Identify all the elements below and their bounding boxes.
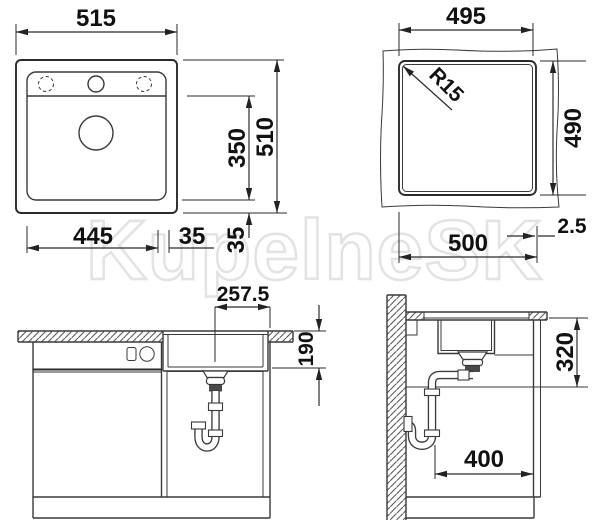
dim-trap-clearance: 400 [435, 445, 533, 479]
dim-label-510: 510 [252, 117, 279, 157]
dim-label-190: 190 [295, 331, 318, 366]
cutout-view: R15 495 490 500 [381, 3, 588, 263]
side-view: 320 400 [387, 295, 588, 520]
dim-corner-radius: R15 [403, 63, 468, 110]
sink-technical-drawing: KupelneSK [0, 0, 600, 520]
dim-label-350: 350 [224, 128, 251, 168]
drain-flange-side [458, 352, 487, 360]
counter-hatch-back [406, 313, 424, 320]
cabinet-side [406, 320, 541, 518]
appliance-knob [140, 347, 154, 361]
dim-label-490: 490 [560, 108, 587, 148]
dimension-drawing-canvas: 515 510 350 445 [0, 0, 600, 520]
drain-circle [79, 116, 113, 150]
dim-label-445: 445 [73, 223, 113, 250]
dim-cutout-height: 490 [540, 61, 587, 195]
dim-label-400: 400 [464, 446, 504, 473]
dim-right-offset: 35 [169, 223, 214, 253]
dim-edge-gap: 2.5 [507, 215, 587, 238]
dim-label-515: 515 [76, 5, 116, 32]
sink-bowl-section [424, 318, 534, 355]
countertop-hatch-right [268, 332, 293, 343]
sink-outer-outline [16, 60, 177, 213]
countertop-hatch-left [18, 332, 163, 343]
wall-hatch [387, 295, 406, 520]
dim-drain-center: 257.5 [215, 283, 270, 362]
front-view: 257.5 190 [18, 283, 326, 518]
support-batten [406, 320, 417, 335]
dim-label-495: 495 [446, 3, 486, 30]
union-nut-side [458, 370, 469, 380]
appliance-button [127, 348, 136, 361]
dim-label-35-bottom: 35 [223, 227, 250, 254]
dim-label-35-right: 35 [179, 223, 206, 250]
wall-outlet-flange [404, 417, 412, 432]
drain-flange [203, 371, 228, 378]
tap-hole-right-dashed [137, 77, 152, 92]
tap-hole-left-dashed [39, 77, 54, 92]
trap-cap-nut [192, 422, 206, 429]
sink-inner-outline [27, 72, 166, 200]
union-nut [209, 403, 223, 411]
top-view: 515 510 350 445 [16, 5, 287, 253]
dim-bowl-width: 445 [27, 223, 158, 253]
tap-hole-center [88, 76, 104, 92]
dim-label-500: 500 [448, 230, 488, 257]
dim-bottom-offset: 35 [223, 213, 250, 253]
dim-cutout-width: 500 [399, 212, 537, 263]
dim-label-r15: R15 [424, 63, 468, 107]
dim-label-2-5: 2.5 [557, 215, 587, 238]
dim-under-counter-height: 320 [549, 318, 588, 387]
dim-cutout-inner-width: 495 [399, 3, 533, 56]
cabinet-front [33, 342, 270, 518]
dim-label-320: 320 [552, 332, 579, 372]
siphon-front [192, 371, 229, 448]
dim-bowl-height: 350 [182, 96, 255, 200]
dim-label-257-5: 257.5 [217, 283, 270, 306]
dim-bowl-depth: 190 [272, 305, 326, 406]
dim-overall-width: 515 [16, 5, 177, 55]
siphon-side [404, 352, 487, 446]
counter-hatch-front [529, 313, 547, 320]
